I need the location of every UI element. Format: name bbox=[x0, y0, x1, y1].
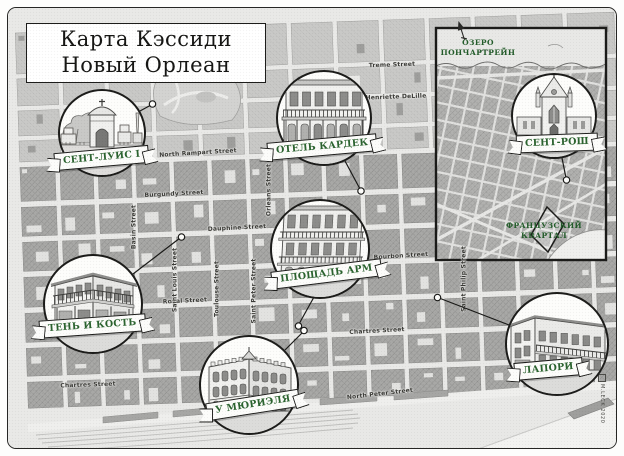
map-title-box: Карта Кэссиди Новый Орлеан bbox=[26, 23, 266, 83]
street-label: Basin Street bbox=[131, 205, 138, 249]
mansion-illustration bbox=[507, 317, 608, 397]
map-title-line-1: Карта Кэссиди bbox=[60, 27, 232, 53]
cassidy-map: Treme StreetHenriette DeLilleNorth Rampa… bbox=[0, 0, 624, 456]
compass-icon bbox=[453, 21, 471, 43]
lake-label: ОЗЕРО ПОНЧАРТРЕЙН bbox=[438, 38, 518, 58]
street-label: Saint Peter Street bbox=[251, 259, 258, 324]
french-quarter-label: ФРАНЦУЗСКИЙ КВАРТАЛ bbox=[502, 221, 586, 241]
banner-sent-rosh: СЕНТ-РОШ bbox=[516, 133, 598, 154]
vignette-ten-i-kost bbox=[41, 252, 145, 356]
street-label: Toulouse Street bbox=[214, 261, 221, 317]
street-label: Saint Louis Street bbox=[172, 248, 179, 312]
map-title-line-2: Новый Орлеан bbox=[61, 53, 230, 79]
street-label: Saint Philip Street bbox=[461, 246, 468, 312]
map-frame: Treme StreetHenriette DeLilleNorth Rampa… bbox=[7, 7, 617, 449]
